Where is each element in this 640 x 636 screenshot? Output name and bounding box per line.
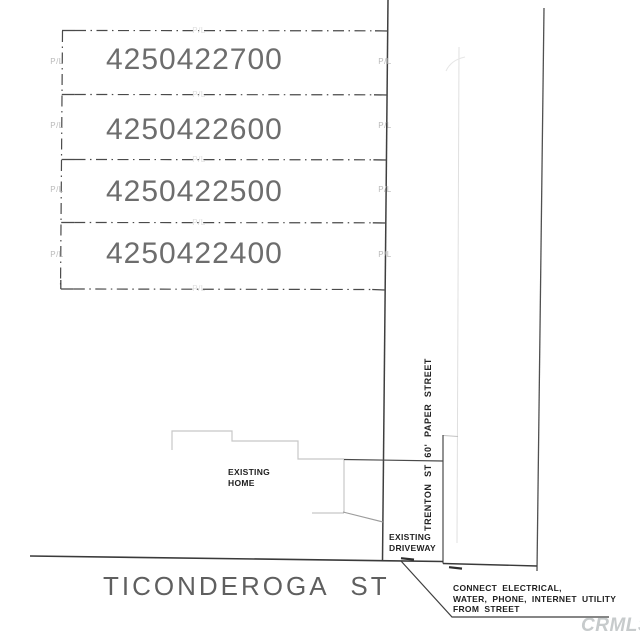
- property-line-label: P/L: [373, 185, 397, 194]
- ticonderoga-street-label: TICONDEROGA ST: [103, 571, 390, 602]
- property-line-label: P/L: [186, 218, 212, 227]
- parcel-apn-label: 4250422600: [106, 113, 283, 147]
- scan-artifact-mark: [446, 57, 465, 71]
- property-line-label: P/L: [373, 57, 397, 66]
- existing-home-outline: [172, 431, 344, 459]
- existing-home-label-line2: HOME: [228, 478, 270, 489]
- centerline-jog: [444, 436, 459, 437]
- property-line-label: P/L: [186, 26, 212, 35]
- utility-note-line2: WATER, PHONE, INTERNET UTILITY: [453, 594, 616, 605]
- crmls-watermark: CRMLS: [581, 615, 640, 636]
- property-line-label: P/L: [45, 250, 69, 259]
- property-line-label: P/L: [45, 121, 69, 130]
- property-line-label: P/L: [186, 90, 212, 99]
- survey-tick: [401, 558, 414, 559]
- utility-note: CONNECT ELECTRICAL, WATER, PHONE, INTERN…: [453, 583, 616, 615]
- trenton-street-label: TRENTON ST 60' PAPER STREET: [423, 361, 435, 531]
- site-plan: 4250422700 4250422600 4250422500 4250422…: [0, 0, 640, 636]
- existing-driveway-label-line1: EXISTING: [389, 532, 436, 543]
- driveway-diagonal-edge: [343, 512, 383, 522]
- property-line-label: P/L: [373, 250, 397, 259]
- paper-street-centerline: [457, 47, 459, 543]
- ticonderoga-street-line: [30, 556, 443, 562]
- existing-home-label-line1: EXISTING: [228, 467, 270, 478]
- plan-linework: [0, 0, 640, 636]
- property-line-label: P/L: [373, 121, 397, 130]
- existing-driveway-label: EXISTING DRIVEWAY: [389, 532, 436, 553]
- parcel-apn-label: 4250422400: [106, 237, 283, 271]
- property-line-label: P/L: [45, 185, 69, 194]
- parcel-apn-label: 4250422500: [106, 175, 283, 209]
- utility-note-line1: CONNECT ELECTRICAL,: [453, 583, 616, 594]
- ticonderoga-street-line-east: [443, 564, 537, 567]
- survey-tick: [449, 567, 462, 568]
- parcel-apn-label: 4250422700: [106, 43, 283, 77]
- utility-note-line3: FROM STREET: [453, 604, 616, 615]
- trenton-west-property-line: [383, 0, 389, 561]
- existing-driveway-label-line2: DRIVEWAY: [389, 543, 436, 554]
- property-line-label: P/L: [186, 284, 212, 293]
- property-line-label: P/L: [186, 155, 212, 164]
- parcel-boundary-line: [74, 289, 372, 290]
- parcel-boundary-cap: [372, 290, 385, 291]
- trenton-east-property-line: [537, 8, 544, 571]
- property-line-label: P/L: [45, 57, 69, 66]
- existing-home-label: EXISTING HOME: [228, 467, 270, 488]
